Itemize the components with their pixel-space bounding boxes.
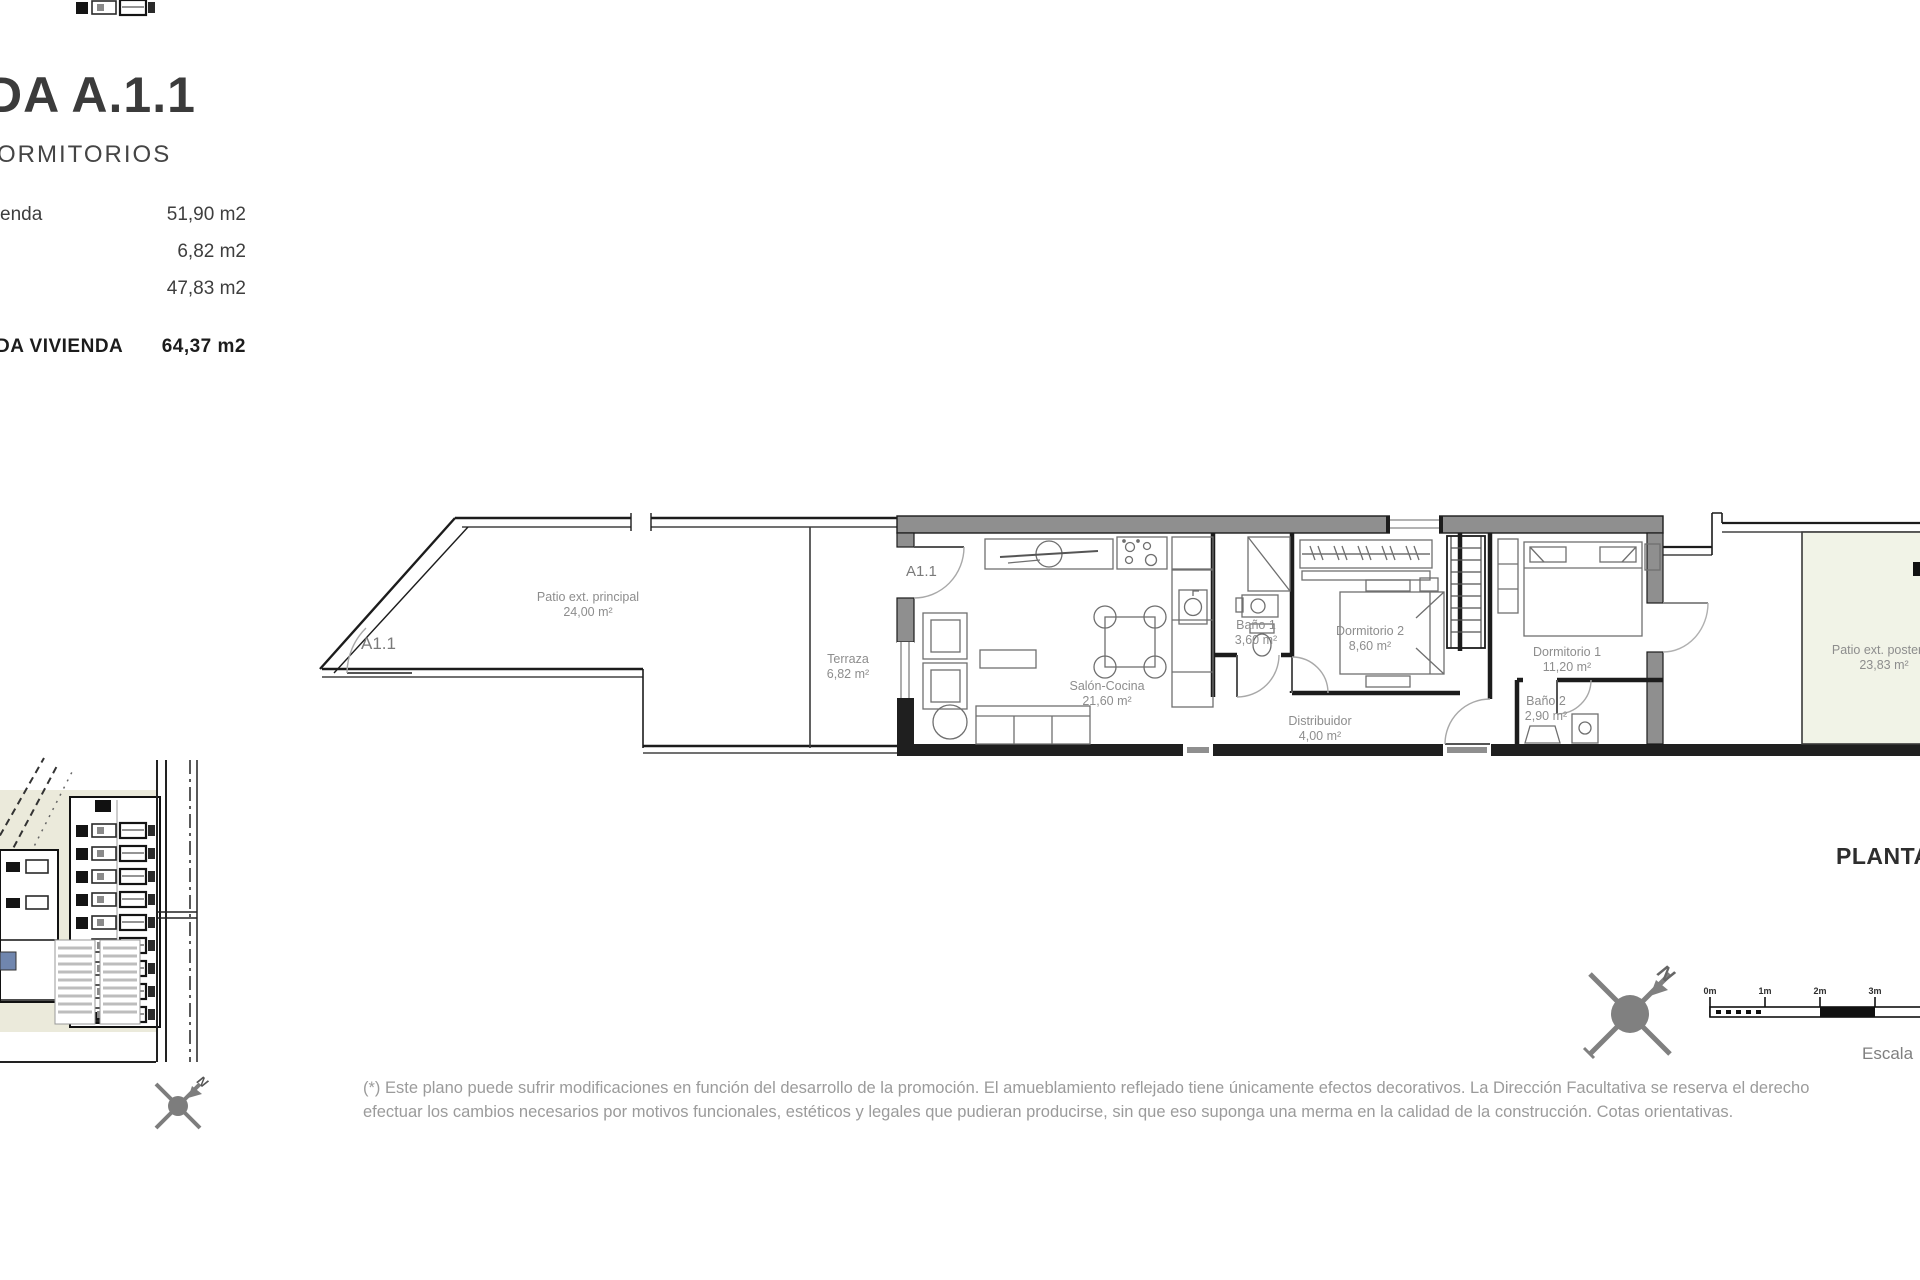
disclaimer-text: (*) Este plano puede sufrir modificacion… (363, 1076, 1809, 1124)
salon-kitchen-furniture (923, 537, 1213, 744)
bath2-washbasin-icon (1572, 714, 1598, 743)
area-row-value: 6,82 m2 (0, 241, 246, 263)
wardrobe1-icon (1498, 539, 1518, 613)
room-area: 23,83 m² (1859, 658, 1908, 672)
scale-tick: 3m (1868, 986, 1882, 996)
room-area: 3,60 m² (1235, 633, 1277, 647)
sink-icon (1185, 599, 1202, 616)
room-label-terraza: Terraza 6,82 m² (827, 652, 869, 682)
dining-table-icon (1094, 606, 1166, 678)
room-name: Dormitorio 1 (1533, 645, 1601, 659)
room-area: 11,20 m² (1543, 660, 1591, 674)
site-plan: N (0, 0, 211, 1128)
site-highlight-unit (0, 952, 16, 970)
room-label-bano2: Baño 2 2,90 m² (1525, 694, 1567, 724)
patio-posterior-edge-mark (1913, 562, 1920, 576)
scale-tick: 2m (1813, 986, 1827, 996)
wardrobe-icon (1300, 540, 1432, 580)
room-name: Dormitorio 2 (1336, 624, 1404, 638)
disclaimer-line-2: efectuar los cambios necesarios por moti… (363, 1100, 1809, 1124)
room-name: Patio ext. posterior (1832, 643, 1920, 657)
page-title: DA A.1.1 (0, 66, 196, 124)
north-arrow-icon: N (1584, 961, 1678, 1058)
dorm2-furniture (1300, 540, 1444, 687)
dwelling-walls (897, 514, 1920, 756)
disclaimer-line-1: (*) Este plano puede sufrir modificacion… (363, 1076, 1809, 1100)
room-label-dormitorio1: Dormitorio 1 11,20 m² (1533, 645, 1601, 675)
kitchen-counter-icon (1172, 570, 1213, 707)
room-name: Salón-Cocina (1069, 679, 1144, 693)
bath2-sink-icon (1525, 726, 1560, 743)
interior-walls (1213, 533, 1663, 744)
room-label-patio-posterior: Patio ext. posterior 23,83 m² (1832, 643, 1920, 673)
room-label-distribuidor: Distribuidor 4,00 m² (1288, 714, 1351, 744)
site-north-arrow-icon: N (156, 1073, 211, 1128)
scale-tick: 0m (1703, 986, 1717, 996)
coffee-table-icon (980, 650, 1036, 668)
page-subtitle: ORMITORIOS (0, 141, 171, 169)
scale-bar (1710, 997, 1920, 1017)
room-area: 8,60 m² (1349, 639, 1391, 653)
bed1-icon (1524, 542, 1642, 636)
armchair-icons (923, 613, 967, 709)
hall-closet-icon (1447, 536, 1485, 648)
room-label-patio-principal: Patio ext. principal 24,00 m² (537, 590, 639, 620)
floor-plan-sheet: { "header": { "title": "DA A.1.1", "subt… (0, 0, 1920, 1280)
room-name: Baño 1 (1236, 618, 1276, 632)
area-row-value: 51,90 m2 (0, 204, 246, 226)
patio-posterior-area (1802, 532, 1920, 744)
room-area: 21,60 m² (1082, 694, 1131, 708)
room-label-dormitorio2: Dormitorio 2 8,60 m² (1336, 624, 1404, 654)
plan-title: PLANTA (1836, 843, 1920, 870)
room-area: 6,82 m² (827, 667, 869, 681)
site-left-building (0, 850, 58, 1002)
area-total-value: 64,37 m2 (0, 336, 246, 358)
stove-icon (1117, 537, 1167, 569)
room-label-salon-cocina: Salón-Cocina 21,60 m² (1069, 679, 1144, 709)
rear-door-arc (1663, 603, 1708, 652)
site-unit-module (76, 0, 155, 15)
room-name: Terraza (827, 652, 869, 666)
room-area: 2,90 m² (1525, 709, 1567, 723)
room-name: Distribuidor (1288, 714, 1351, 728)
room-name: Baño 2 (1526, 694, 1566, 708)
room-area: 4,00 m² (1299, 729, 1341, 743)
dorm1-furniture (1498, 539, 1660, 636)
scale-label: Escala (1862, 1044, 1913, 1064)
room-name: Patio ext. principal (537, 590, 639, 604)
pouf-icon (933, 705, 967, 739)
unit-label-entry: A1.1 (906, 563, 937, 580)
unit-label-patio: A1.1 (361, 634, 396, 654)
area-row-value: 47,83 m2 (0, 278, 246, 300)
room-label-bano1: Baño 1 3,60 m² (1235, 618, 1277, 648)
room-area: 24,00 m² (563, 605, 612, 619)
washbasin-icon (1242, 595, 1278, 617)
sofa-icon (976, 706, 1090, 744)
scale-tick: 1m (1758, 986, 1772, 996)
